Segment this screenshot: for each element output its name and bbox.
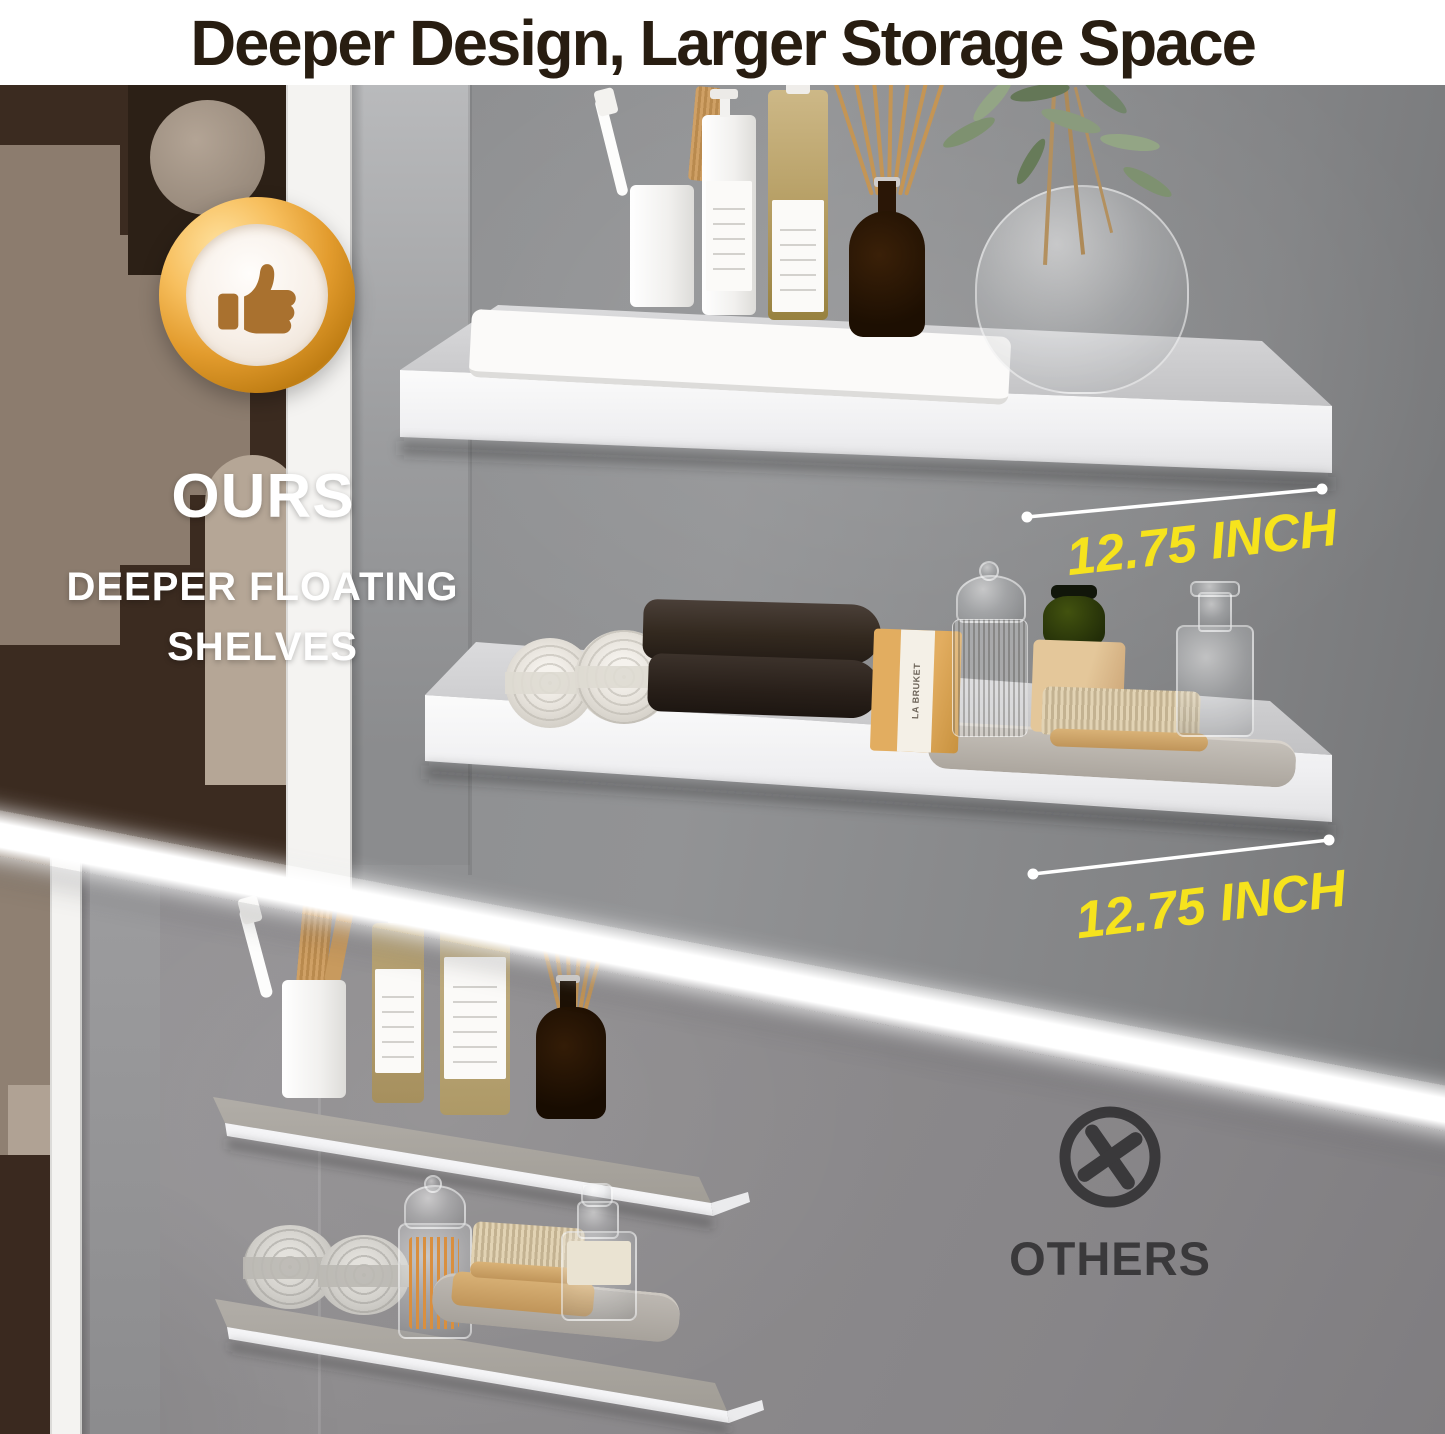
thumbs-up-icon bbox=[211, 249, 303, 341]
jar-label bbox=[567, 1241, 631, 1285]
ours-heading: OURS bbox=[63, 461, 463, 532]
header-bar: Deeper Design, Larger Storage Space bbox=[0, 0, 1445, 85]
comparison-scene: LA BRUKET bbox=[0, 85, 1445, 1434]
pump-spout bbox=[710, 89, 738, 99]
soap-box: LA BRUKET bbox=[870, 629, 962, 754]
label-text-lines bbox=[382, 983, 414, 1059]
badge-inner-circle bbox=[186, 224, 328, 366]
small-glass-jar bbox=[561, 1231, 637, 1321]
ours-subheading: DEEPER FLOATING SHELVES bbox=[10, 557, 515, 677]
bottle-label bbox=[706, 181, 752, 291]
x-circle-icon bbox=[1050, 1097, 1170, 1217]
shelf-end-cap bbox=[711, 1192, 750, 1216]
others-heading: OTHERS bbox=[960, 1231, 1260, 1286]
soap-label-text: LA BRUKET bbox=[910, 663, 922, 719]
apothecary-jar bbox=[952, 619, 1028, 737]
bottle-label bbox=[444, 957, 506, 1079]
label-text-lines bbox=[780, 216, 816, 296]
glass-vase bbox=[975, 185, 1189, 394]
clear-glass-bottle bbox=[1176, 625, 1254, 737]
glass-bottle bbox=[372, 923, 424, 1103]
soap-label-strip: LA BRUKET bbox=[897, 629, 935, 752]
reed-diffuser-bottle bbox=[536, 1007, 606, 1119]
jar-lid bbox=[956, 575, 1026, 623]
bottle-label bbox=[375, 969, 421, 1073]
tall-glass-bottle bbox=[768, 90, 828, 320]
shelf-end-cap bbox=[727, 1400, 764, 1423]
folded-dark-towel bbox=[647, 653, 881, 719]
reed-diffuser-bottle bbox=[849, 211, 925, 337]
toothbrush-cup bbox=[630, 185, 694, 307]
bottle-pump bbox=[786, 85, 810, 94]
bottle-label bbox=[772, 200, 824, 312]
page-title: Deeper Design, Larger Storage Space bbox=[190, 6, 1255, 80]
rolled-towel bbox=[318, 1235, 410, 1315]
toothbrush-cup bbox=[282, 980, 346, 1098]
lotion-bottle bbox=[702, 115, 756, 315]
thumbs-up-badge-icon bbox=[159, 197, 355, 393]
label-text-lines bbox=[453, 973, 497, 1063]
label-text-lines bbox=[713, 195, 745, 277]
product-infographic: Deeper Design, Larger Storage Space bbox=[0, 0, 1445, 1434]
